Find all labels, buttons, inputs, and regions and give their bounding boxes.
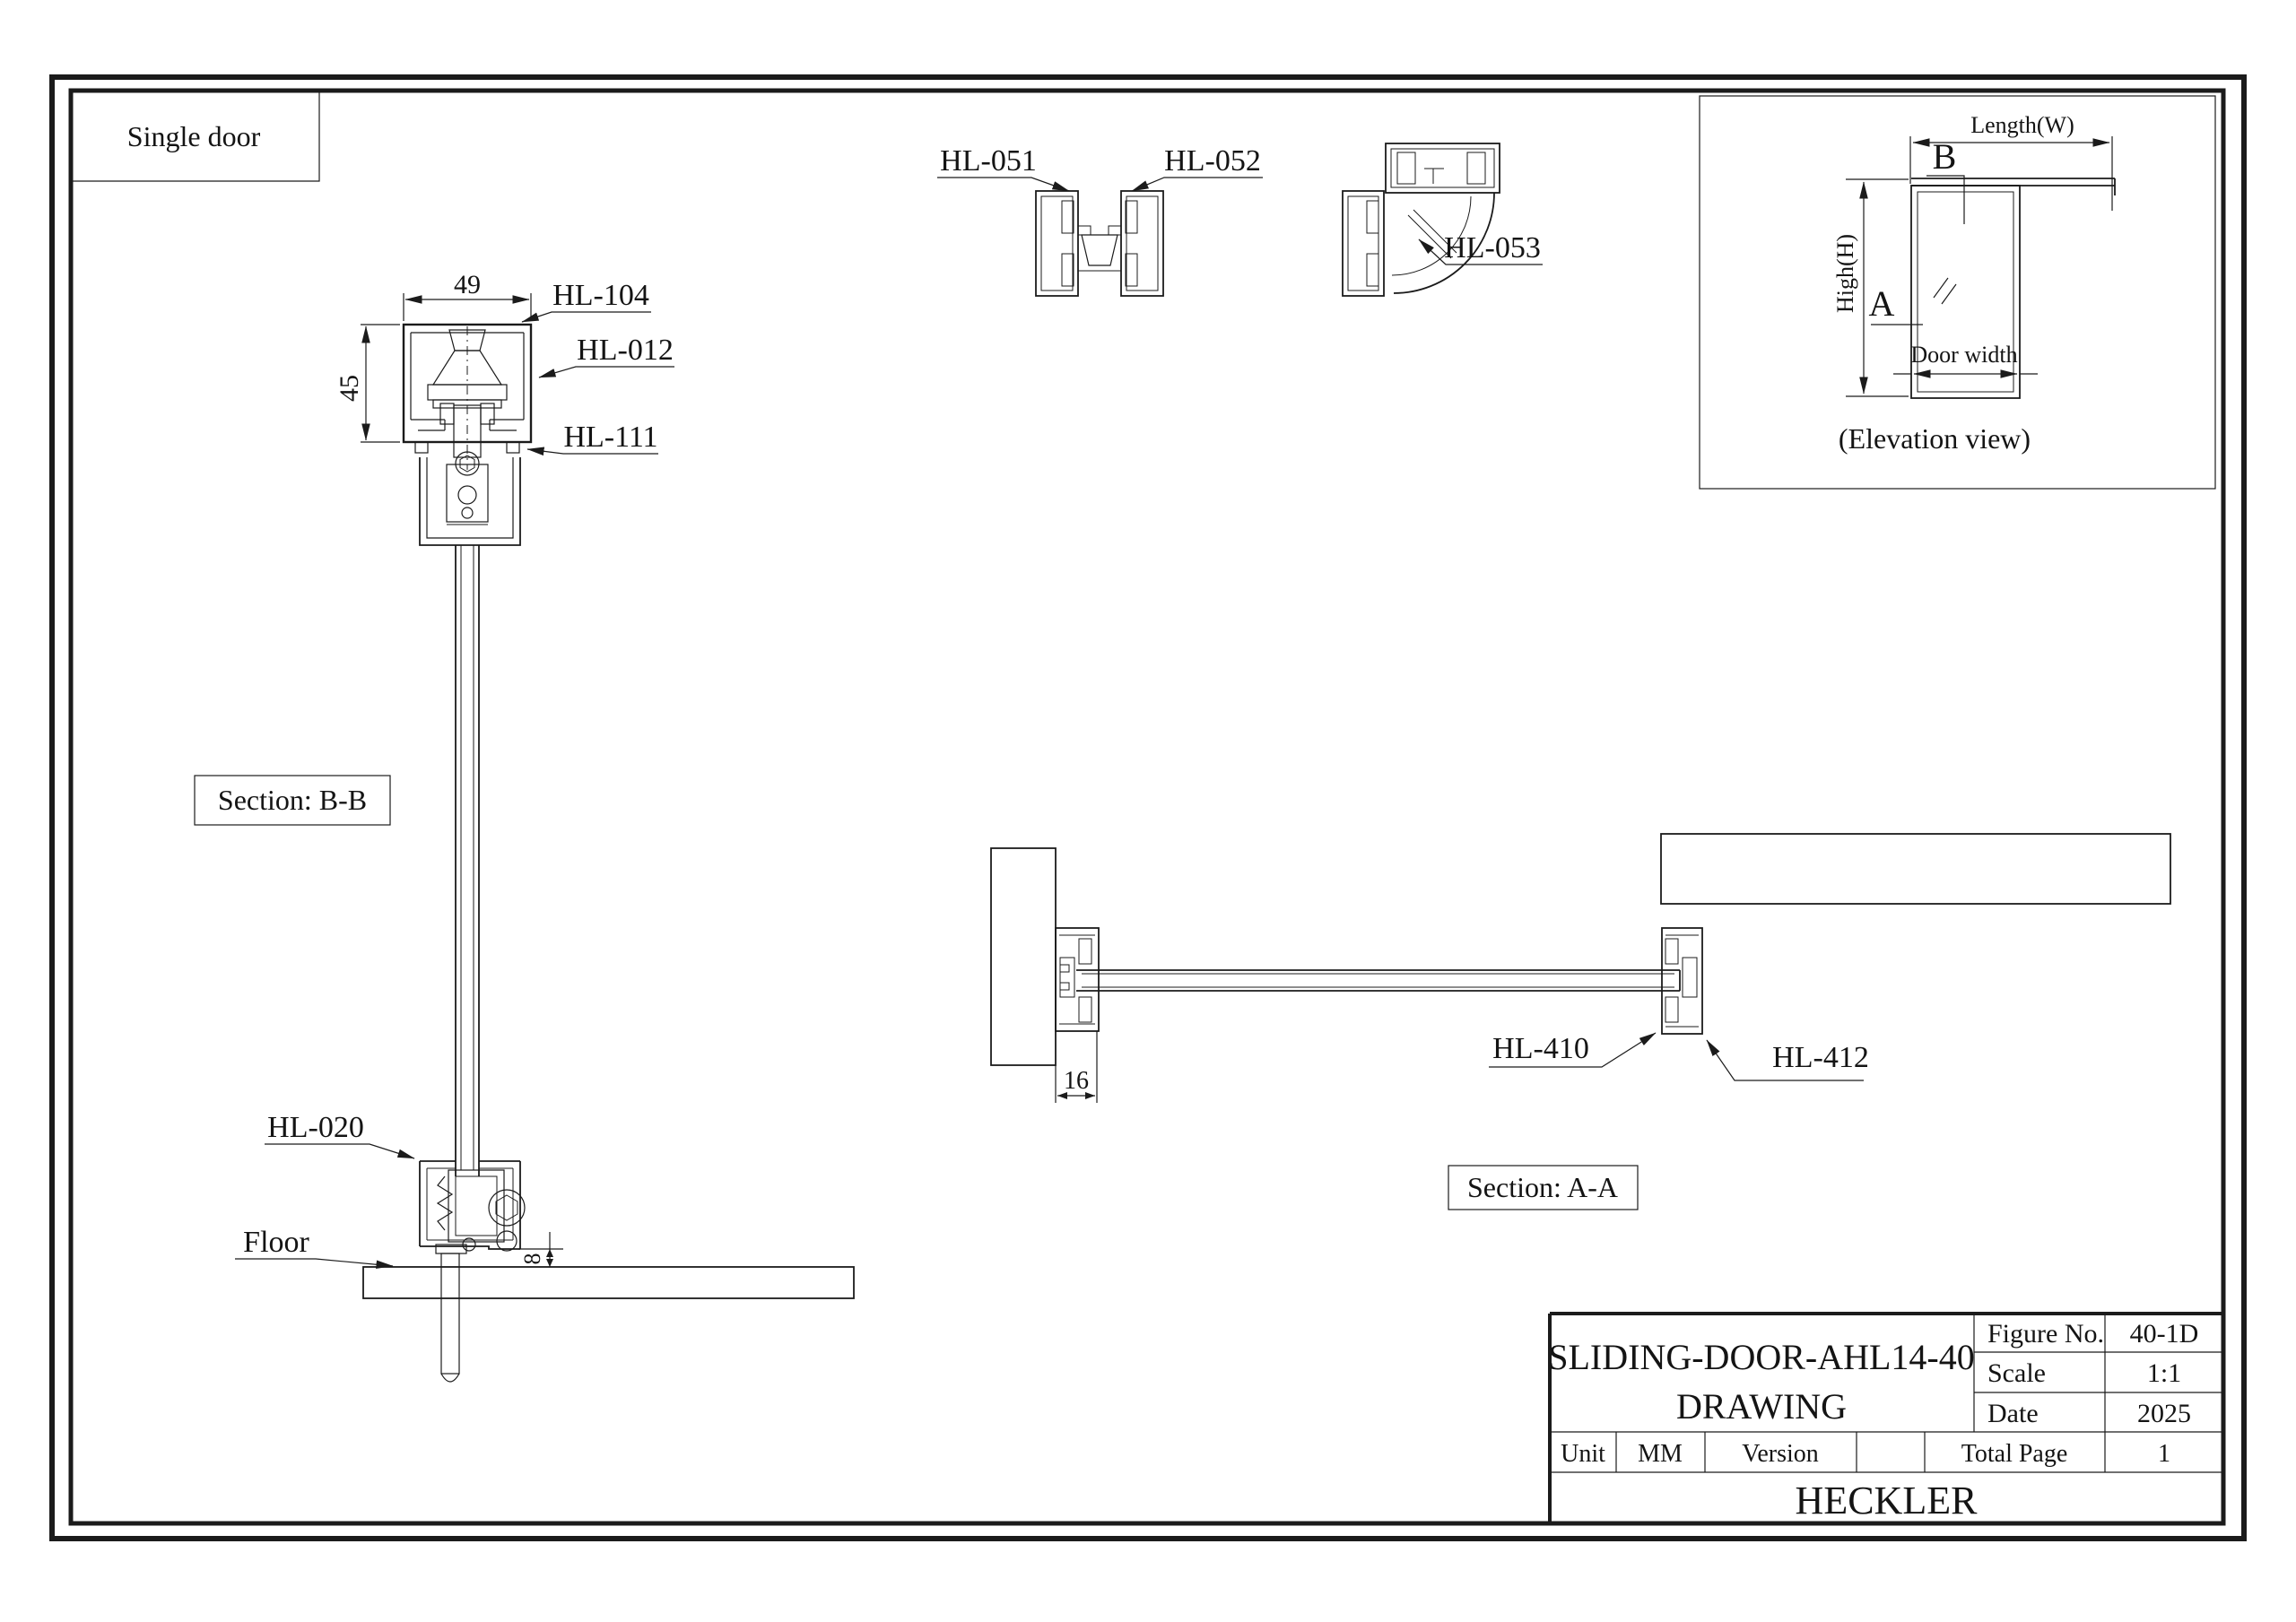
total-page-label: Total Page <box>1961 1440 2068 1468</box>
corner-label-box: Single door <box>71 91 319 181</box>
elevation-marker-b: B <box>1926 136 1964 224</box>
spring-detail <box>438 1176 452 1230</box>
unit-value: MM <box>1638 1440 1683 1468</box>
scale-label: Scale <box>1987 1358 2046 1388</box>
label-hl-410: HL-410 <box>1492 1032 1589 1065</box>
label-hl-052: HL-052 <box>1164 144 1261 178</box>
bb-caption: Section: B-B <box>218 784 367 816</box>
dim-45-text: 45 <box>335 375 364 402</box>
bb-dim-floor-gap: 8 <box>518 1232 563 1267</box>
leader-hl-051 <box>937 178 1069 191</box>
aa-door-panel <box>1076 970 1680 991</box>
profile-interlock-pair <box>1036 191 1163 296</box>
aa-end-profile <box>1662 928 1702 1034</box>
dim-door-width-text: Door width <box>1910 342 2017 368</box>
dim-length-text: Length(W) <box>1970 112 2074 138</box>
elevation-caption: (Elevation view) <box>1839 422 2031 455</box>
label-hl-053: HL-053 <box>1444 231 1541 265</box>
marker-b-text: B <box>1933 136 1957 177</box>
title-line1: SLIDING-DOOR-AHL14-40 <box>1548 1337 1975 1377</box>
bb-door-panel <box>456 545 479 1176</box>
aa-label-end-profile: HL-410 <box>1489 1032 1656 1067</box>
figure-no-label: Figure No. <box>1987 1319 2104 1349</box>
bb-label-track: HL-104 <box>522 279 651 322</box>
company-name: HECKLER <box>1796 1479 1979 1522</box>
dim-16-text: 16 <box>1064 1067 1089 1095</box>
profiles-label-left: HL-051 <box>937 144 1069 191</box>
dim-49-text: 49 <box>454 270 481 299</box>
label-hl-111: HL-111 <box>563 421 657 454</box>
leader-hl-104 <box>522 312 651 322</box>
label-hl-104: HL-104 <box>552 279 649 312</box>
label-hl-012: HL-012 <box>577 334 674 367</box>
label-hl-412: HL-412 <box>1772 1041 1869 1074</box>
elevation-marker-a: A <box>1869 283 1923 325</box>
bb-roller-assembly <box>428 326 507 475</box>
bb-label-hanger: HL-111 <box>527 421 658 454</box>
elevation-dim-door-width: Door width <box>1893 342 2038 374</box>
bb-dim-track-height: 45 <box>335 325 400 442</box>
aa-caption-box: Section: A-A <box>1448 1166 1638 1210</box>
aa-left-wall <box>991 848 1056 1065</box>
label-floor: Floor <box>243 1226 309 1259</box>
scale-value: 1:1 <box>2147 1358 2181 1388</box>
corner-label: Single door <box>127 120 261 152</box>
bb-bottom-guide <box>420 1161 525 1251</box>
leader-hl-052 <box>1132 178 1263 191</box>
glass-symbol <box>1934 278 1956 304</box>
total-page-value: 1 <box>2158 1440 2170 1468</box>
elevation-view: Length(W) B High(H) A Door width (Elevat… <box>1700 96 2215 489</box>
version-label: Version <box>1742 1440 1819 1468</box>
profiles-label-corner: HL-053 <box>1419 231 1543 265</box>
dim-8-text: 8 <box>519 1253 545 1265</box>
bb-label-floor-guide: HL-020 <box>265 1111 414 1158</box>
bb-floor-slab <box>363 1267 854 1298</box>
cad-canvas: Single door 49 <box>0 0 2296 1622</box>
bb-caption-box: Section: B-B <box>195 776 390 825</box>
title-line2: DRAWING <box>1676 1386 1847 1427</box>
aa-caption: Section: A-A <box>1467 1171 1618 1203</box>
page-border-inner <box>71 91 2223 1523</box>
drawing-sheet: Single door 49 <box>0 0 2296 1622</box>
bb-anchor-bolt <box>436 1245 466 1382</box>
dim-height-text: High(H) <box>1832 234 1858 313</box>
date-label: Date <box>1987 1399 2039 1428</box>
bb-label-floor: Floor <box>235 1226 393 1266</box>
leader-hl-012 <box>539 367 674 377</box>
aa-dim-jamb-width: 16 <box>1056 1031 1097 1103</box>
label-hl-020: HL-020 <box>267 1111 364 1144</box>
unit-label: Unit <box>1561 1440 1605 1468</box>
bb-dim-track-width: 49 <box>404 270 531 321</box>
label-hl-051: HL-051 <box>940 144 1037 178</box>
bb-label-roller: HL-012 <box>539 334 674 377</box>
title-block: SLIDING-DOOR-AHL14-40 DRAWING Figure No.… <box>1548 1314 2223 1523</box>
date-value: 2025 <box>2137 1399 2191 1428</box>
aa-right-wall <box>1661 834 2170 904</box>
leader-hl-020 <box>265 1144 414 1158</box>
aa-label-wall-profile: HL-412 <box>1707 1040 1869 1080</box>
leader-floor <box>235 1259 393 1266</box>
figure-no-value: 40-1D <box>2130 1319 2199 1349</box>
profiles-label-right: HL-052 <box>1132 144 1263 191</box>
aa-wall-jamb-profile <box>1056 928 1099 1031</box>
marker-a-text: A <box>1869 283 1895 324</box>
profile-corner <box>1343 143 1500 296</box>
